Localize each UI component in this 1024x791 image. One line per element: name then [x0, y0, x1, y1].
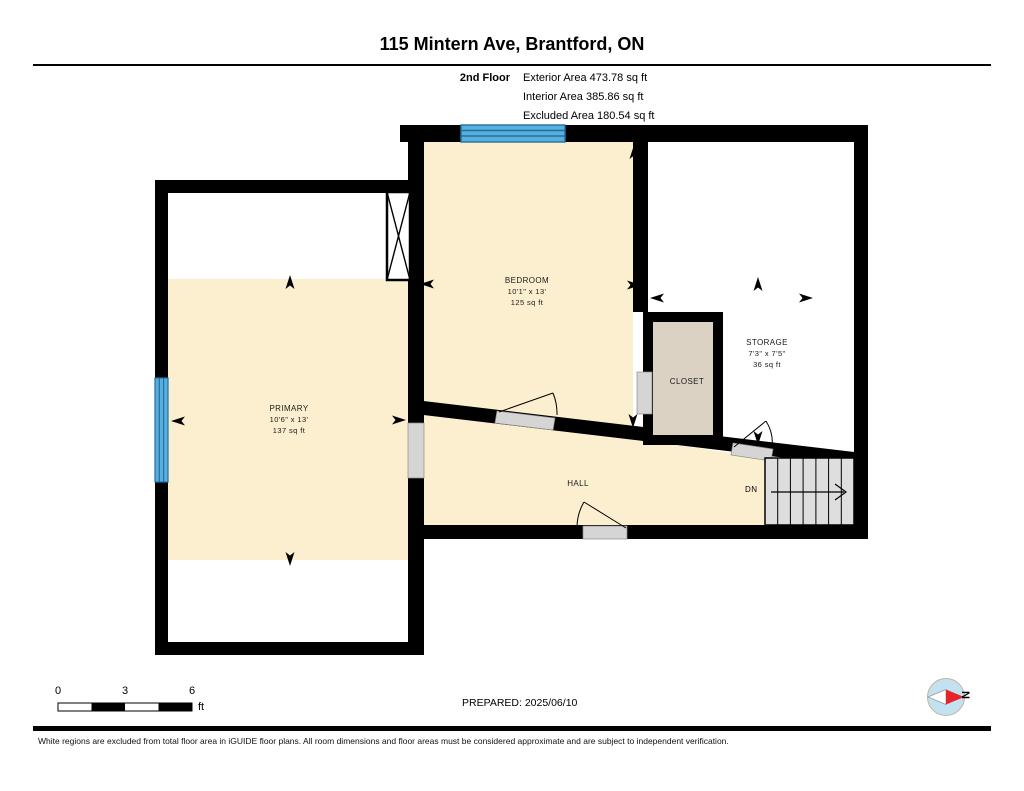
wall-primary-top — [155, 180, 421, 193]
floorplan-drawing — [0, 0, 1024, 791]
chimney-box — [387, 192, 410, 280]
compass-north-label: N — [959, 691, 971, 699]
prepared-date-label: PREPARED: 2025/06/10 — [462, 697, 577, 709]
primary-room-dims: 10'6" x 13' — [269, 414, 308, 425]
floorplan-page: 115 Mintern Ave, Brantford, ON 2nd Floor… — [0, 0, 1024, 791]
footer-disclaimer: White regions are excluded from total fl… — [38, 736, 998, 746]
hall-room-name: HALL — [567, 478, 589, 489]
primary-room-label: PRIMARY 10'6" x 13' 137 sq ft — [269, 403, 308, 436]
primary-window — [155, 378, 168, 482]
wall-primary-bottom — [155, 642, 424, 655]
storage-room-dims: 7'3" x 7'5" — [746, 348, 788, 359]
primary-room-area: 137 sq ft — [269, 425, 308, 436]
hall-room-label: HALL — [567, 478, 589, 489]
closet-room-name: CLOSET — [670, 376, 704, 387]
scale-unit-label: ft — [198, 701, 204, 713]
scale-tick-0: 0 — [55, 685, 61, 697]
bedroom-room-dims: 10'1" x 13' — [505, 286, 549, 297]
storage-room-name: STORAGE — [746, 337, 788, 348]
bedroom-room-area: 125 sq ft — [505, 297, 549, 308]
bedroom-room-label: BEDROOM 10'1" x 13' 125 sq ft — [505, 275, 549, 308]
closet-door-opening — [637, 372, 652, 414]
bedroom-room-name: BEDROOM — [505, 275, 549, 286]
storage-room-label: STORAGE 7'3" x 7'5" 36 sq ft — [746, 337, 788, 370]
scale-tick-3: 3 — [122, 685, 128, 697]
primary-door-opening — [408, 423, 424, 478]
scale-tick-6: 6 — [189, 685, 195, 697]
closet-room-label: CLOSET — [670, 376, 704, 387]
hall-door — [583, 526, 627, 539]
arrow-storage-up — [754, 277, 763, 291]
footer-divider-bar — [33, 726, 991, 731]
scale-bar — [58, 703, 192, 711]
stairs-dn-label: DN — [745, 485, 758, 494]
storage-room-area: 36 sq ft — [746, 359, 788, 370]
arrow-storage-left — [650, 294, 664, 303]
wall-right — [854, 125, 868, 539]
bedroom-window — [461, 125, 565, 142]
arrow-storage-right — [799, 294, 813, 303]
wall-hall-bottom — [415, 525, 868, 539]
primary-room-name: PRIMARY — [269, 403, 308, 414]
stairs — [765, 458, 854, 525]
